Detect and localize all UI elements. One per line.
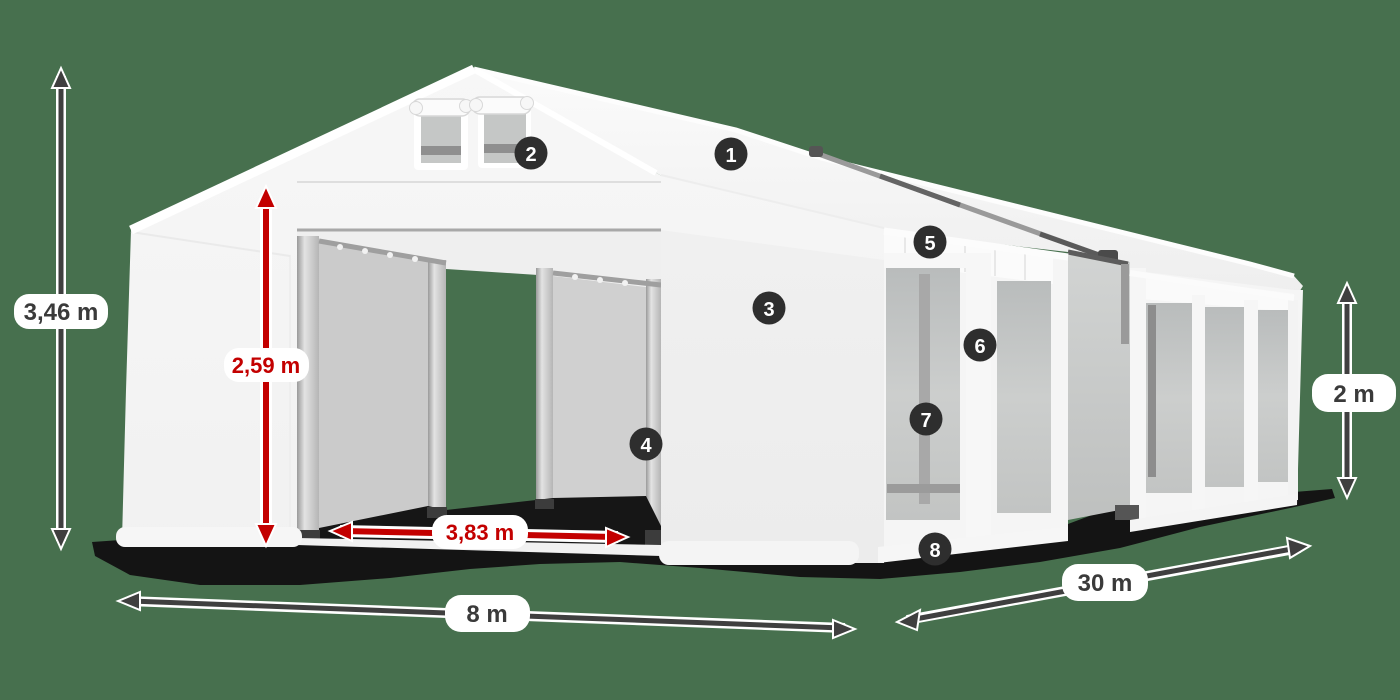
- svg-text:3: 3: [763, 299, 774, 321]
- svg-text:8: 8: [929, 540, 940, 562]
- svg-text:3,83 m: 3,83 m: [446, 520, 515, 545]
- svg-text:6: 6: [974, 336, 985, 358]
- svg-text:5: 5: [924, 233, 935, 255]
- svg-text:2: 2: [525, 144, 536, 166]
- svg-text:7: 7: [920, 410, 931, 432]
- svg-text:3,46 m: 3,46 m: [24, 299, 99, 326]
- svg-text:4: 4: [640, 435, 652, 457]
- svg-text:1: 1: [725, 145, 736, 167]
- svg-text:8 m: 8 m: [466, 601, 507, 628]
- svg-text:30 m: 30 m: [1078, 570, 1133, 597]
- svg-text:2 m: 2 m: [1333, 381, 1374, 408]
- svg-text:2,59 m: 2,59 m: [232, 353, 301, 378]
